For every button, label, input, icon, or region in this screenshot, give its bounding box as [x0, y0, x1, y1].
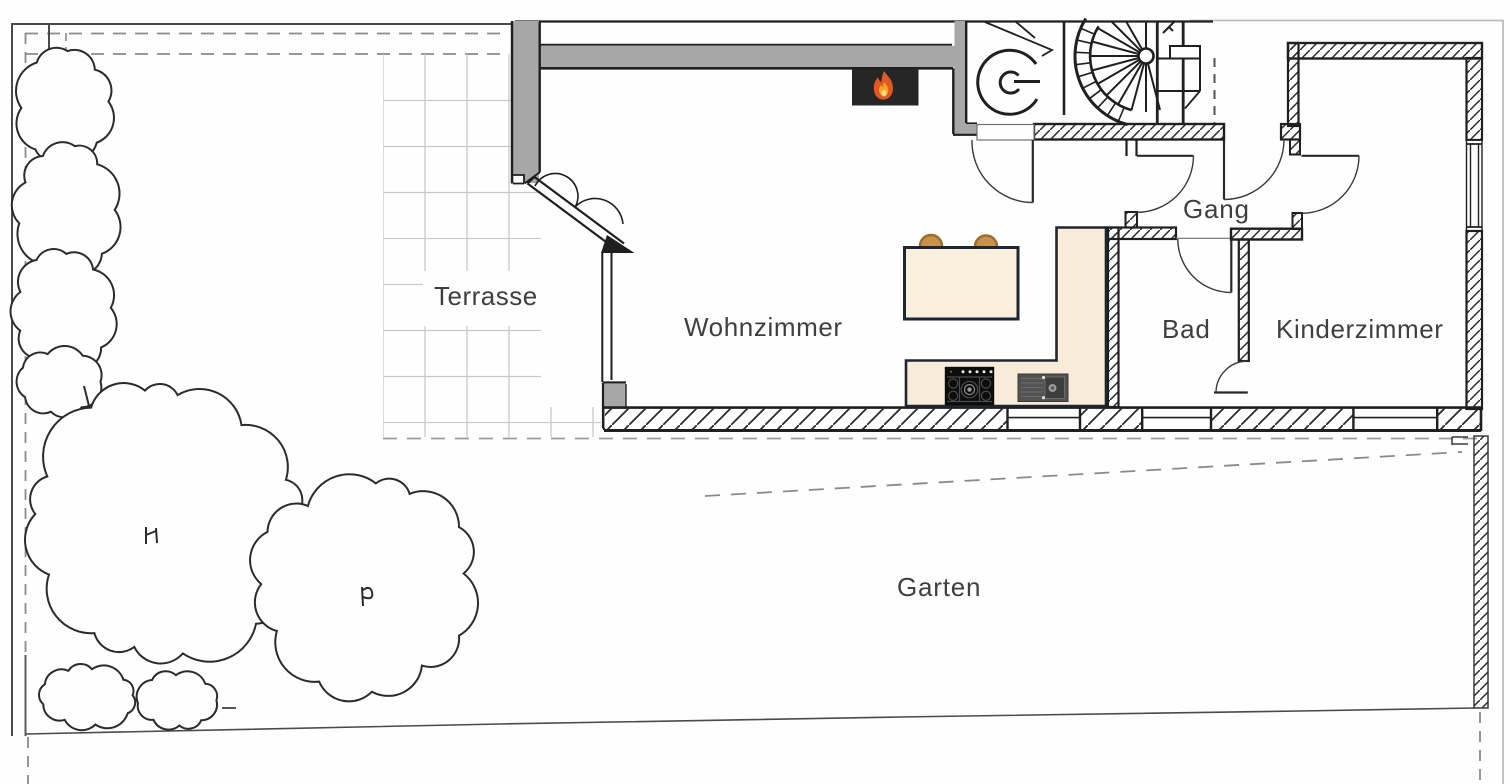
svg-text:Wohnzimmer: Wohnzimmer: [684, 312, 843, 342]
svg-text:Bad: Bad: [1162, 314, 1211, 344]
svg-text:Gang: Gang: [1183, 194, 1250, 224]
svg-text:Terrasse: Terrasse: [434, 281, 538, 311]
svg-text:Garten: Garten: [897, 572, 981, 602]
svg-text:Kinderzimmer: Kinderzimmer: [1276, 314, 1444, 344]
